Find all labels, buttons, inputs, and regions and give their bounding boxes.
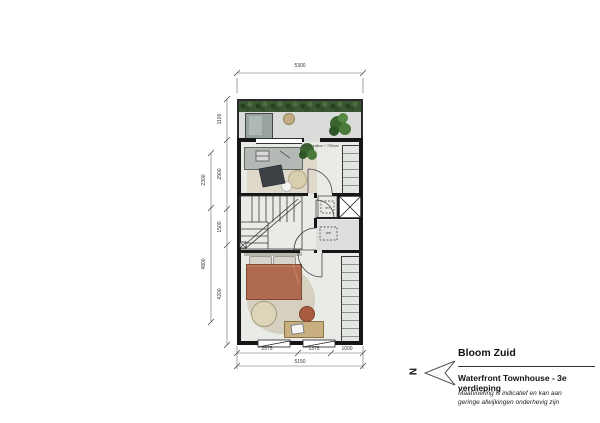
dim-bottom-seg-3: 1000 xyxy=(331,346,363,352)
project-title: Bloom Zuid xyxy=(458,347,516,359)
terrace-note: opstap balkon + 750mm xyxy=(298,144,342,148)
floorplan-sheet: 5300 1100 2900 1500 4200 2300 4800 2575 … xyxy=(0,0,600,423)
dim-left-inner-4: 4200 xyxy=(217,280,223,308)
door-swings xyxy=(294,169,334,277)
dim-bottom-seg-1: 2575 xyxy=(250,346,284,352)
title-divider xyxy=(458,366,595,367)
dim-left-outer-2: 4800 xyxy=(201,250,207,278)
mv-closet-label: mv xyxy=(320,206,335,210)
dim-left-inner-1: 1100 xyxy=(217,105,223,133)
north-arrow-icon xyxy=(425,361,455,385)
shaft xyxy=(339,196,361,218)
bed-fold-lines xyxy=(247,264,299,284)
disclaimer-line-1: Maatvoering is indicatief en kan aan xyxy=(458,390,562,398)
potted-plants xyxy=(299,113,351,160)
dim-bottom-seg-2: 1375 xyxy=(298,346,330,352)
dim-left-inner-3: 1500 xyxy=(217,213,223,241)
study-desk-items xyxy=(256,151,290,187)
staircase xyxy=(240,196,302,249)
north-label: N xyxy=(409,364,420,380)
dim-left-outer-1: 2300 xyxy=(201,166,207,194)
dim-top-total: 5300 xyxy=(280,63,320,69)
dim-bottom-total: 5150 xyxy=(282,359,318,365)
disclaimer-line-2: geringe afwijkingen onderhevig zijn xyxy=(458,399,559,407)
washer-label: wm xyxy=(321,231,336,235)
dim-left-inner-2: 2900 xyxy=(217,160,223,188)
